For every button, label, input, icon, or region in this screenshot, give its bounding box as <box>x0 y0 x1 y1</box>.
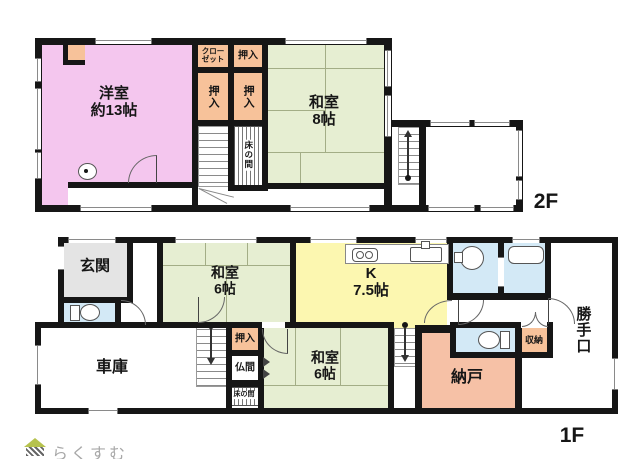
wall <box>232 350 258 356</box>
window <box>35 345 41 385</box>
window <box>516 180 522 200</box>
wall <box>450 352 553 358</box>
entrance-door <box>58 246 64 270</box>
tatami-line <box>268 152 384 153</box>
room-label-nando: 納戸 <box>451 369 483 387</box>
logo-house-roof-icon <box>24 438 46 447</box>
window <box>88 408 118 414</box>
window <box>285 38 367 44</box>
wall <box>447 293 551 300</box>
stair-arrow-down <box>207 358 215 365</box>
window <box>35 88 41 150</box>
window <box>428 205 475 211</box>
room-size: 6帖 <box>211 281 239 297</box>
floor-label-1f: 1F <box>560 424 585 448</box>
room-label-washitsu6-back: 和室 6帖 <box>311 350 339 381</box>
room-label-oshiire-right: 押入 <box>242 85 254 109</box>
logo-house-base-icon <box>26 447 44 456</box>
room-label-butsuma: 仏間 <box>235 362 255 373</box>
stair-arrow-line <box>210 329 212 359</box>
watermark-brand: らくすむ <box>52 440 128 459</box>
closet-box <box>68 45 85 60</box>
room-label-washitsu6-front: 和室 6帖 <box>211 265 239 296</box>
washbasin-icon <box>460 246 484 270</box>
door-arc-shuno-right <box>535 312 548 327</box>
window <box>290 205 370 211</box>
window <box>385 95 391 137</box>
window <box>430 120 470 126</box>
room-size: 8帖 <box>309 112 339 129</box>
window <box>516 130 522 177</box>
wall <box>63 60 85 65</box>
wall <box>290 237 296 328</box>
window <box>175 237 257 243</box>
room-name: 和室 <box>311 350 339 366</box>
stairs-1f-left <box>196 322 228 387</box>
room-label-garage: 車庫 <box>96 359 128 377</box>
wall <box>547 322 553 358</box>
wall <box>228 185 268 191</box>
stair-arrow-line <box>404 328 406 356</box>
room-label-western: 洋室 約13帖 <box>91 86 138 120</box>
washbasin-tap <box>454 252 463 263</box>
stove-burner <box>365 251 373 259</box>
door-opening <box>262 322 285 328</box>
wall <box>515 352 522 408</box>
room-name: 和室 <box>309 95 339 112</box>
room-size: 7.5帖 <box>353 283 389 300</box>
room-western-strip <box>42 182 68 205</box>
window <box>415 237 447 243</box>
wall <box>268 183 384 189</box>
room-label-closet: クローゼット <box>200 48 226 65</box>
room-label-kitchen: K 7.5帖 <box>353 266 389 300</box>
wall <box>157 237 163 328</box>
stair-arrow-down <box>401 355 409 362</box>
room-label-katteguchi: 勝手口 <box>574 306 591 354</box>
window <box>95 38 152 44</box>
door-arc-katteguchi <box>548 298 575 324</box>
window <box>310 237 357 243</box>
wall <box>388 322 394 408</box>
door-arc-shuno-left <box>522 312 536 327</box>
stairs-2f-center <box>198 126 230 187</box>
toilet-icon <box>70 305 80 321</box>
tatami-line <box>247 243 248 265</box>
toilet-bowl-icon <box>80 304 100 321</box>
window <box>474 120 510 126</box>
tatami-line <box>295 328 296 385</box>
floor-plan: 洋室 約13帖 和室 8帖 クローゼット 押入 押入 押入 床の間 2F <box>0 0 640 459</box>
room-label-oshiire-left: 押入 <box>207 85 219 109</box>
window <box>612 358 618 390</box>
wall <box>232 380 258 387</box>
room-size: 約13帖 <box>91 103 138 120</box>
window <box>68 237 116 243</box>
tatami-line <box>268 68 384 69</box>
window <box>80 205 152 211</box>
wall <box>415 325 422 408</box>
tatami-line <box>300 152 301 183</box>
stair-arrow-line <box>407 136 409 176</box>
wall <box>226 322 232 408</box>
tatami-line <box>340 328 341 385</box>
faucet-icon <box>421 241 430 249</box>
wall <box>545 237 551 300</box>
wall <box>192 67 268 73</box>
wall <box>515 328 522 352</box>
wall <box>192 120 268 126</box>
room-label-oshiire-top: 押入 <box>238 50 258 61</box>
sink-icon <box>410 247 442 262</box>
door-arc-toilet <box>121 300 146 325</box>
window <box>480 205 514 211</box>
window <box>512 237 540 243</box>
window <box>35 152 41 179</box>
basin-dot <box>84 169 88 173</box>
stairs-diagonal <box>199 188 228 204</box>
room-label-tokonoma-2f: 床の間 <box>243 140 253 171</box>
folding-door-mark <box>263 357 270 367</box>
room-label-genkan: 玄関 <box>80 259 110 276</box>
toilet-bowl-icon <box>478 331 500 349</box>
window <box>35 58 41 82</box>
bathtub-icon <box>508 246 544 264</box>
stove-burner <box>356 251 364 259</box>
window <box>385 50 391 87</box>
tatami-line <box>325 45 326 68</box>
wall <box>35 408 618 414</box>
room-label-tokonoma-1f: 床の間 <box>233 391 256 399</box>
room-label-shuno: 収納 <box>525 335 543 345</box>
room-name: 洋室 <box>91 86 138 103</box>
floor-label-2f: 2F <box>534 190 559 214</box>
room-name: 和室 <box>211 265 239 281</box>
tatami-line <box>264 385 388 386</box>
toilet-tank-icon <box>500 331 510 349</box>
bath-door <box>498 257 504 287</box>
room-size: 6帖 <box>311 366 339 382</box>
room-label-washitsu8: 和室 8帖 <box>309 95 339 129</box>
tatami-line <box>205 243 206 265</box>
wall <box>419 127 426 205</box>
wall <box>127 243 133 303</box>
room-name: K <box>353 266 389 283</box>
room-label-oshiire-1f: 押入 <box>235 333 255 344</box>
folding-door-mark <box>263 369 270 379</box>
stair-dot <box>405 175 411 181</box>
